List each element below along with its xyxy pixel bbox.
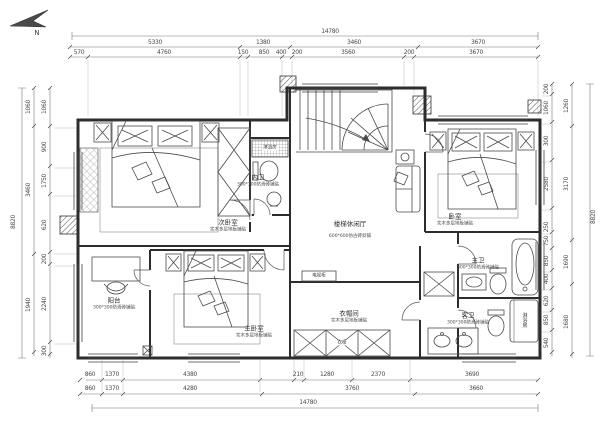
dimension-label: 1060 (42, 100, 48, 114)
dimension-label: 5330 (148, 40, 162, 46)
floor-plan: N 14780 5330 1380 3460 3670 570 4760 150… (0, 0, 604, 421)
bedroom-top-left-furniture (80, 121, 250, 232)
room-floor-note: 实木多层地板铺贴 (236, 334, 272, 339)
dimension-label: 1680 (564, 315, 570, 329)
room-label-balcony: 阳台 300*300防滑砖铺贴 (93, 298, 135, 311)
room-floor-note: 实木多层地板铺贴 (437, 222, 473, 227)
room-floor-note: 实木多层地板铺贴 (210, 228, 246, 233)
dimension-label: 850 (544, 315, 550, 326)
dimension-label: 200 (292, 50, 303, 56)
extension-lines (54, 60, 550, 392)
dimension-label: 210 (293, 372, 304, 378)
dimension-label: 850 (544, 256, 550, 267)
dimension-label: 300 (42, 346, 48, 357)
dimension-label: 4280 (183, 386, 197, 392)
dimension-label: 3460 (26, 183, 32, 197)
room-label-master-bath: 主卫 300*300防滑砖铺贴 (457, 258, 499, 271)
room-label-guest-bath: 客卫 300*300防滑砖铺贴 (447, 313, 489, 326)
dimension-label: 1940 (26, 298, 32, 312)
dimension-label: 860 (85, 386, 96, 392)
room-floor-note: 实木多层地板铺贴 (331, 319, 367, 324)
dimension-label: 200 (544, 84, 550, 95)
tv-cabinet-label: 电视柜 (311, 274, 327, 279)
dimension-label: 3460 (347, 40, 361, 46)
room-name: 内卫 (252, 175, 265, 182)
dimension-label: 3660 (469, 386, 483, 392)
dimension-label: 4380 (183, 372, 197, 378)
north-arrow-icon (10, 10, 48, 27)
dimension-label: 4760 (157, 50, 171, 56)
dimension-label: 540 (544, 338, 550, 349)
dimension-label: 1060 (26, 100, 32, 114)
room-name: 主卧室 (244, 326, 264, 333)
dimension-label: 750 (544, 236, 550, 247)
dimension-label: 1750 (42, 174, 48, 188)
dimension-label: 400 (276, 50, 287, 56)
shower-label: 淋浴房 (522, 313, 527, 328)
hall-sofa (394, 150, 420, 212)
dimension-label: 1690 (564, 255, 570, 269)
room-label-stair-hall: 楼梯休闲厅 600*600仿古砖斜铺 (329, 221, 371, 239)
room-label-master-bedroom: 主卧室 实木多层地板铺贴 (236, 326, 272, 339)
dimension-label: 8820 (591, 210, 597, 224)
room-name: 卧室 (449, 214, 462, 221)
dimension-label: 3690 (465, 372, 479, 378)
dimension-label: 14780 (321, 29, 339, 35)
dimension-label: 1060 (544, 101, 550, 115)
dimension-label: 620 (544, 296, 550, 307)
dimension-label: 3170 (564, 177, 570, 191)
dimension-ticks (32, 45, 574, 396)
room-floor-note: 300*300防滑砖铺贴 (93, 306, 135, 311)
room-name: 楼梯休闲厅 (334, 221, 367, 228)
dimension-label: 1280 (320, 372, 334, 378)
room-floor-note: 300*300防滑砖铺贴 (237, 183, 279, 188)
dimension-label: 200 (42, 254, 48, 265)
room-label-inner-bath: 内卫 300*300防滑砖铺贴 (237, 175, 279, 188)
compass-label: N (34, 29, 39, 37)
dimension-label: 3560 (341, 50, 355, 56)
room-name: 次卧室 (218, 220, 238, 227)
dimension-label: 200 (404, 50, 415, 56)
dimension-label: 300 (544, 136, 550, 147)
room-floor-note: 600*600仿古砖斜铺 (329, 234, 371, 239)
dimension-label: 2240 (42, 297, 48, 311)
dimension-label: 400 (544, 274, 550, 285)
room-label-bedroom-top-left: 次卧室 实木多层地板铺贴 (210, 220, 246, 233)
room-name: 阳台 (108, 298, 121, 305)
dimension-label: 3670 (469, 50, 483, 56)
room-name: 衣帽间 (339, 311, 359, 318)
dimension-label: 3670 (471, 40, 485, 46)
room-label-bedroom-top-right: 卧室 实木多层地板铺贴 (437, 214, 473, 227)
door-openings (150, 132, 458, 328)
staircase (296, 90, 392, 152)
dimension-label: 8820 (11, 215, 17, 229)
bedroom-top-right-furniture (430, 129, 534, 218)
dimension-label: 14780 (299, 400, 317, 406)
column-markers (60, 76, 541, 234)
dimension-label: 1370 (105, 372, 119, 378)
dimension-label: 860 (85, 372, 96, 378)
floorplan-linework (0, 0, 604, 421)
dimension-label: 1260 (564, 99, 570, 113)
dimension-label: 620 (42, 220, 48, 231)
dimension-label: 570 (74, 50, 85, 56)
shower-label: 淋浴房 (262, 146, 278, 151)
wardrobe-label: 衣柜 (337, 341, 348, 346)
dimension-label: 900 (42, 142, 48, 153)
room-floor-note: 300*300防滑砖铺贴 (457, 266, 499, 271)
room-name: 客卫 (462, 313, 475, 320)
room-label-cloakroom: 衣帽间 实木多层地板铺贴 (331, 311, 367, 324)
room-name: 主卫 (472, 258, 485, 265)
dimension-label: 2580 (544, 177, 550, 191)
dimension-label: 1380 (256, 40, 270, 46)
dimension-label: 2370 (371, 372, 385, 378)
dimension-label: 850 (259, 50, 270, 56)
dimension-label: 150 (238, 50, 249, 56)
dimension-label: 3760 (345, 386, 359, 392)
dimension-label: 250 (544, 222, 550, 233)
dimension-label: 1370 (105, 386, 119, 392)
room-floor-note: 300*300防滑砖铺贴 (447, 321, 489, 326)
